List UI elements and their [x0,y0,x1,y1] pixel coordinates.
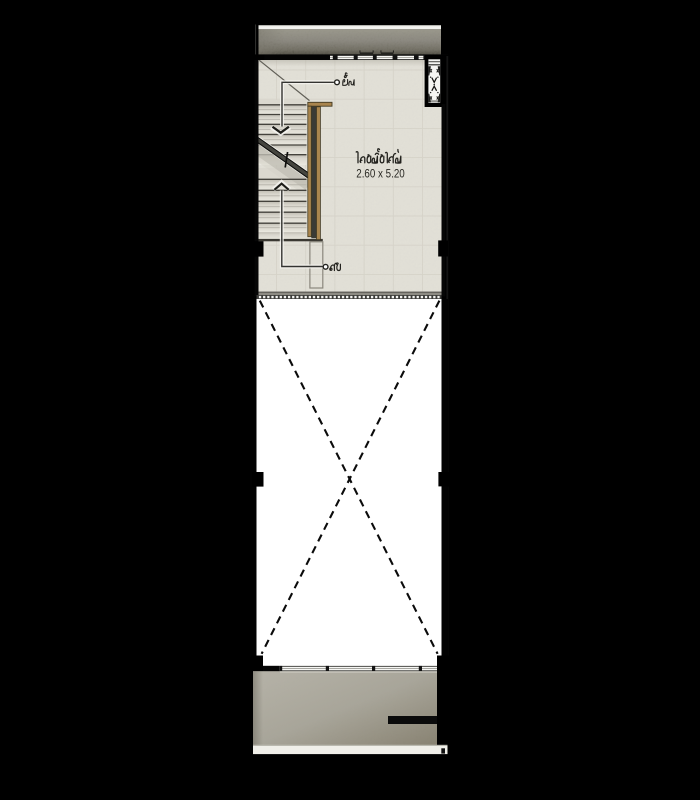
svg-text:2.60 x 5.20: 2.60 x 5.20 [356,167,405,181]
